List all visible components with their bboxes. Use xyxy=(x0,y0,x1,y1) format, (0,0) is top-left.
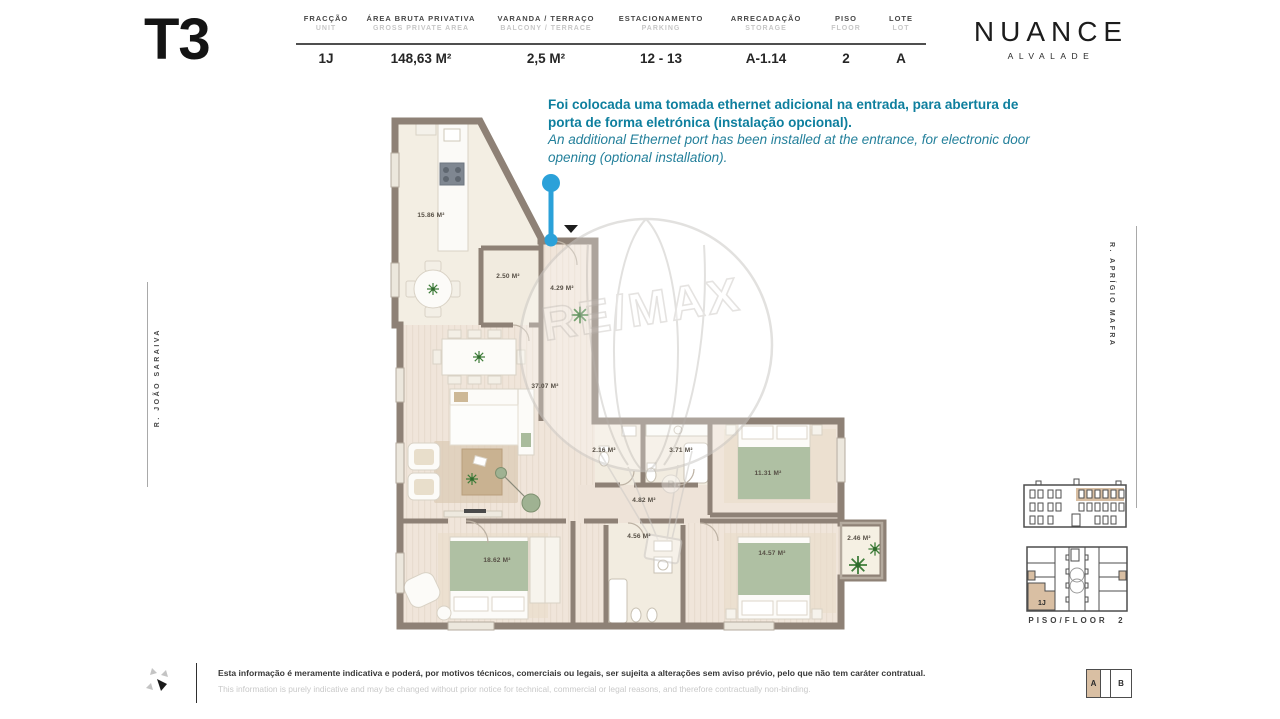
floor-key-plan: 1J xyxy=(1025,545,1129,613)
spec-col-storage: ARRECADAÇÃO STORAGE xyxy=(716,13,816,34)
compass-icon xyxy=(144,666,172,696)
disclaimer-pt: Esta informação é meramente indicativa e… xyxy=(218,668,948,678)
ethernet-port-marker xyxy=(542,174,560,247)
balcony-area-value: 2,5 M² xyxy=(486,51,606,66)
disclaimer-en: This information is purely indicative an… xyxy=(218,684,948,694)
room-label-living: 37.07 M² xyxy=(531,383,559,390)
lot-value: A xyxy=(876,51,926,66)
gross-area-value: 148,63 M² xyxy=(356,51,486,66)
lot-b-cell: B xyxy=(1111,670,1131,697)
bedroom-1-furniture xyxy=(724,423,836,503)
street-line-right xyxy=(1136,226,1137,508)
room-label-hallway: 4.82 M² xyxy=(632,497,656,504)
room-label-bath2: 4.56 M² xyxy=(627,533,651,540)
spec-col-floor: PISO FLOOR xyxy=(816,13,876,34)
room-label-kitchen: 15.86 M² xyxy=(417,212,445,219)
room-label-entrance: 4.29 M² xyxy=(550,285,574,292)
unit-value: 1J xyxy=(296,51,356,66)
room-label-bath1: 3.71 M² xyxy=(669,447,693,454)
spec-col-lot: LOTE LOT xyxy=(876,13,926,34)
entrance-direction-icon xyxy=(564,225,578,233)
room-label-bedroom1: 11.31 M² xyxy=(755,470,783,477)
spec-header-labels: FRACÇÃO UNIT ÁREA BRUTA PRIVATIVA GROSS … xyxy=(296,13,926,34)
room-label-wc: 2.16 M² xyxy=(592,447,616,454)
spec-col-unit: FRACÇÃO UNIT xyxy=(296,13,356,34)
floor-value: 2 xyxy=(816,51,876,66)
svg-text:R: R xyxy=(667,480,675,491)
room-label-bedroom2: 18.62 M² xyxy=(483,557,511,564)
room-label-pantry: 2.50 M² xyxy=(496,273,520,280)
footer-divider xyxy=(196,663,197,703)
spec-values: 1J 148,63 M² 2,5 M² 12 - 13 A-1.14 2 A xyxy=(296,51,926,66)
lot-selector: A B xyxy=(1086,669,1132,698)
room-label-bedroom3: 14.57 M² xyxy=(758,550,786,557)
street-label-left: R. JOÃO SARAIVA xyxy=(154,328,161,427)
floor-indicator: PISO/FLOOR 2 xyxy=(1025,616,1129,625)
typology-title: T3 xyxy=(144,6,210,73)
spec-col-balcony: VARANDA / TERRAÇO BALCONY / TERRACE xyxy=(486,13,606,34)
lot-gap-cell xyxy=(1101,670,1111,697)
spec-col-area: ÁREA BRUTA PRIVATIVA GROSS PRIVATE AREA xyxy=(356,13,486,34)
sofa xyxy=(450,389,534,455)
street-line-left xyxy=(147,282,148,487)
storage-value: A-1.14 xyxy=(716,51,816,66)
spec-col-parking: ESTACIONAMENTO PARKING xyxy=(606,13,716,34)
room-label-balcony: 2.46 M² xyxy=(847,535,871,542)
brand-logo: NUANCE ALVALADE xyxy=(970,16,1132,61)
lot-a-cell: A xyxy=(1087,670,1101,697)
brand-name: NUANCE xyxy=(970,16,1132,48)
header-rule xyxy=(296,43,926,45)
floor-plan: R RE/MAX 15.86 M² 2.50 M² 4.29 M² 37.07 … xyxy=(388,113,888,633)
unit-1j-label: 1J xyxy=(1038,600,1046,607)
street-label-right: R. APRÍGIO MAFRA xyxy=(1108,242,1115,347)
parking-value: 12 - 13 xyxy=(606,51,716,66)
plant-icon xyxy=(849,556,867,574)
bedroom-2-furniture xyxy=(724,533,836,619)
building-elevation-diagram xyxy=(1022,477,1128,529)
brand-location: ALVALADE xyxy=(970,51,1132,61)
